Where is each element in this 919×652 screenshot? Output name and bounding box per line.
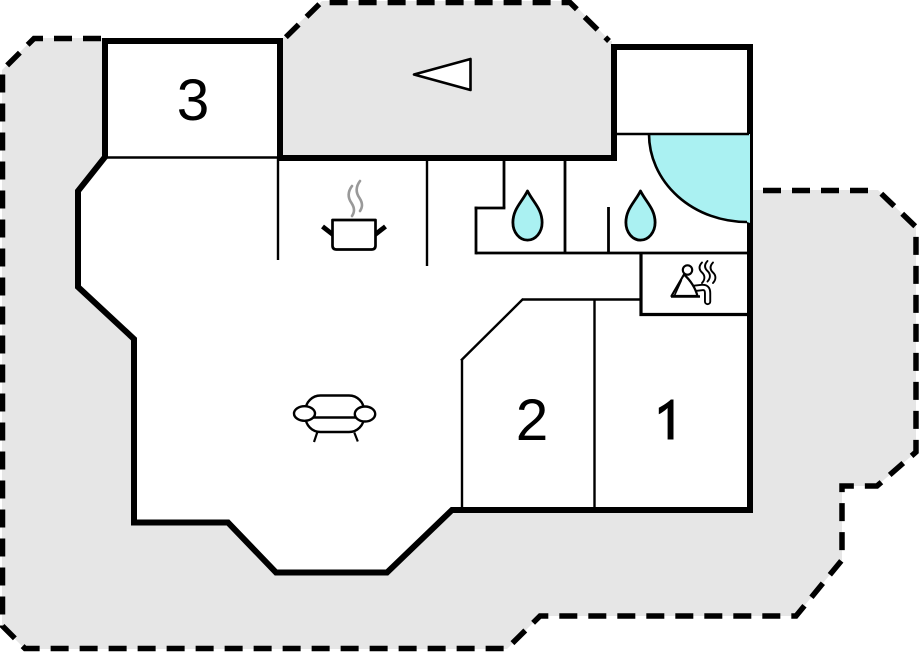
svg-text:3: 3 [177,68,210,133]
svg-text:2: 2 [516,388,549,453]
